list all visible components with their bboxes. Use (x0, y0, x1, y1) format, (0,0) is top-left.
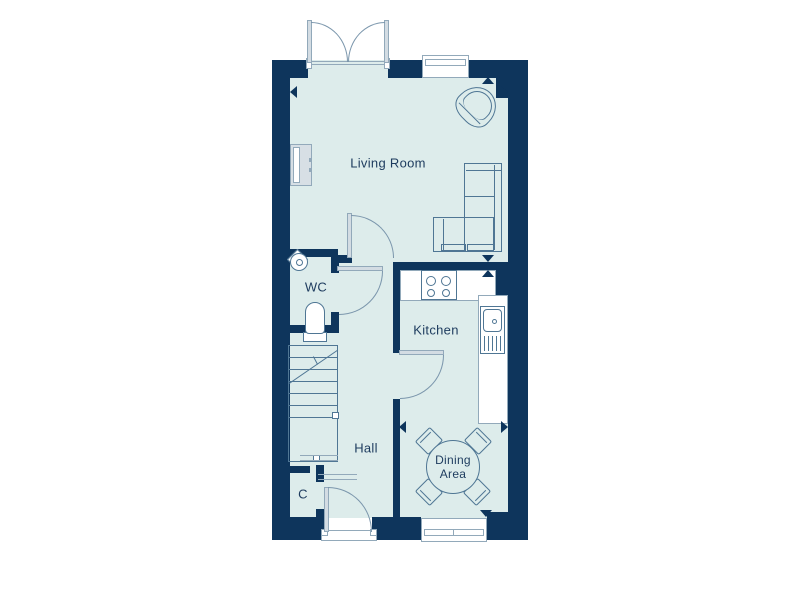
hob-icon (421, 270, 457, 300)
dimension-arrow-right-icon (501, 86, 508, 98)
dimension-arrow-right-icon (501, 421, 508, 433)
wall-left (272, 60, 290, 540)
wall-hall-dining (393, 399, 400, 518)
basin-drain (296, 259, 303, 266)
french-door-swing-right (348, 22, 385, 62)
toilet-icon (305, 302, 325, 334)
wall-cupboard-stub-bottom (316, 509, 324, 518)
window-glazing-line (425, 59, 466, 66)
hob-burner (427, 289, 435, 297)
dimension-arrow-left-icon (399, 421, 406, 433)
label-cupboard: C (298, 487, 308, 502)
hob-burner (441, 276, 451, 286)
floorplan-canvas: Living Room WC Kitchen Hall Dining Area … (0, 0, 800, 600)
stair-tread (288, 405, 338, 406)
wall-hall-kitchen-upper (393, 262, 400, 353)
sofa-cushion (467, 244, 494, 251)
stair-tread (288, 369, 338, 370)
sofa-cushion-line (464, 196, 494, 197)
stairs-icon (288, 345, 338, 462)
hob-burner (442, 289, 450, 297)
label-kitchen: Kitchen (413, 323, 458, 338)
wall-cupboard-top (290, 466, 310, 473)
wall-bottom-mid-segment (372, 517, 421, 540)
label-wc: WC (305, 280, 327, 295)
chair-back-line (420, 432, 431, 443)
sink-drainer-line (492, 336, 493, 351)
sofa-cushion (441, 244, 466, 251)
wall-top-left-segment (272, 60, 308, 78)
stair-newel-post (332, 412, 339, 419)
hob-burner (426, 276, 436, 286)
stair-tread (288, 417, 338, 418)
sink-drain (492, 319, 497, 324)
wall-right (508, 60, 528, 540)
radiator-valve (309, 168, 312, 172)
sink-drainer-line (500, 336, 501, 351)
sofa-back-line (494, 165, 495, 250)
wall-living-kitchen-divider (394, 262, 508, 270)
stair-tread (288, 381, 338, 382)
dimension-arrow-up-icon (482, 270, 494, 277)
dimension-arrow-up-icon (482, 77, 494, 84)
sink-drainer-line (488, 336, 489, 351)
label-dining-area: Dining Area (429, 453, 477, 481)
dimension-arrow-left-icon (290, 86, 297, 98)
label-hall: Hall (354, 441, 378, 456)
label-living-room: Living Room (350, 156, 426, 171)
wall-kitchen-pier (496, 270, 508, 295)
wall-bottom-left-segment (272, 517, 326, 540)
window-mullion (453, 529, 454, 536)
window-glazing-line (424, 529, 484, 536)
dimension-arrow-down-icon (482, 255, 494, 262)
sofa-arm-line (466, 170, 502, 171)
sink-drainer-line (496, 336, 497, 351)
radiator-panel (293, 147, 300, 183)
french-door-swing-left (311, 22, 348, 62)
dimension-arrow-down-icon (480, 510, 492, 517)
radiator-valve (309, 158, 312, 162)
stair-tread (288, 393, 338, 394)
cupboard-front-line (318, 474, 357, 480)
sink-drainer-line (484, 336, 485, 351)
wall-bottom-right-segment (487, 517, 528, 540)
stair-bottom-edge (300, 455, 338, 461)
